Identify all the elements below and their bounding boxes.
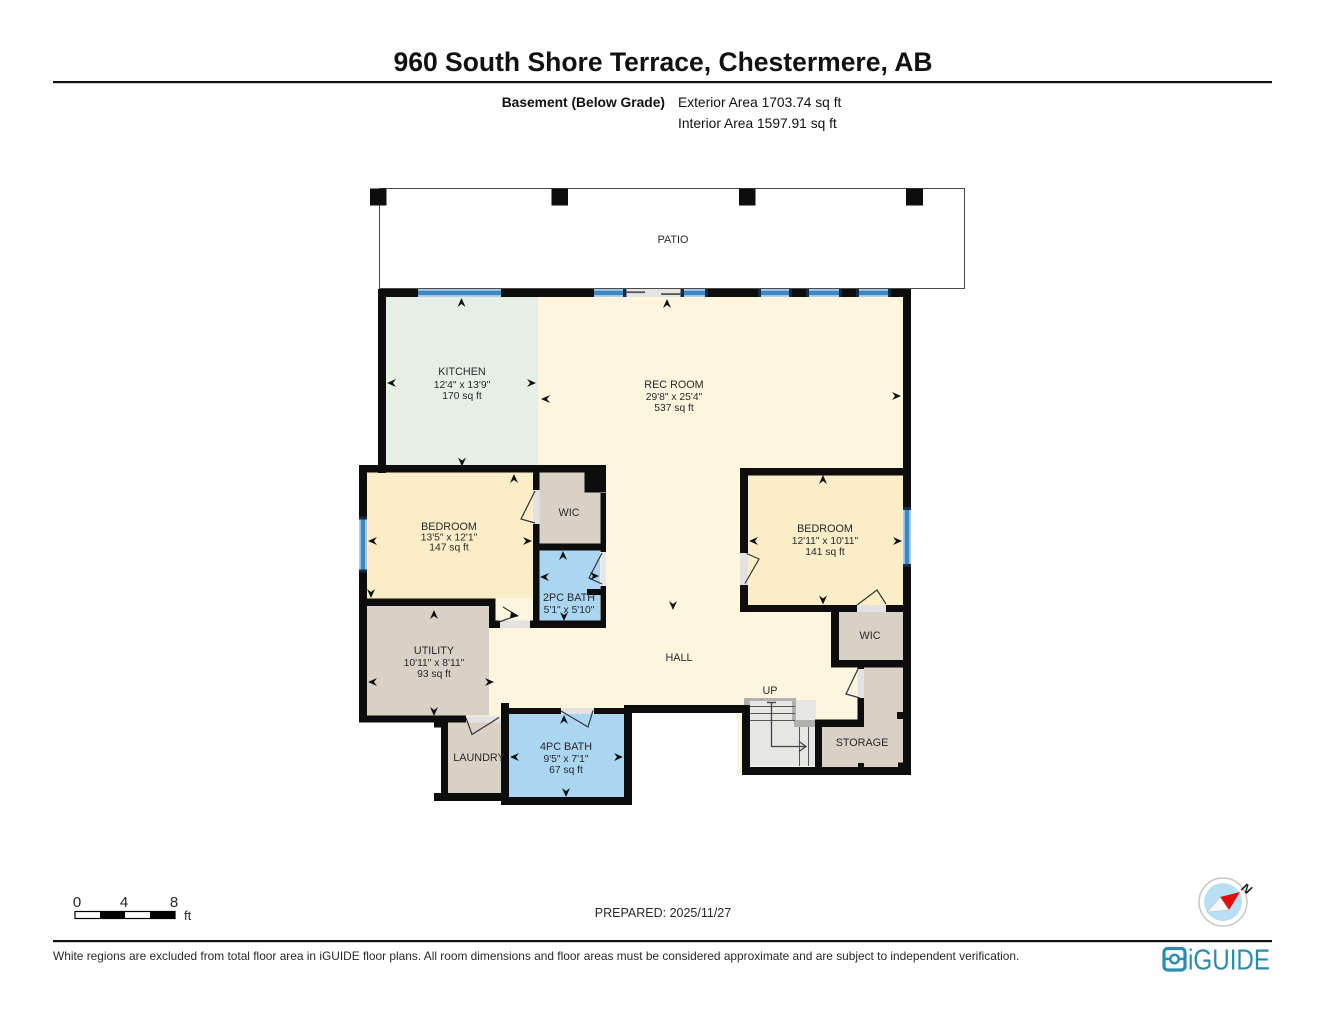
svg-text:Basement (Below Grade): Basement (Below Grade) — [502, 95, 665, 110]
svg-text:4: 4 — [120, 894, 128, 911]
svg-text:8: 8 — [170, 894, 178, 911]
svg-text:141 sq ft: 141 sq ft — [805, 547, 845, 558]
svg-text:BEDROOM: BEDROOM — [421, 521, 477, 533]
svg-text:Interior Area 1597.91 sq ft: Interior Area 1597.91 sq ft — [678, 116, 837, 131]
svg-text:4PC BATH: 4PC BATH — [540, 741, 592, 753]
svg-text:HALL: HALL — [665, 652, 692, 664]
svg-text:147 sq ft: 147 sq ft — [429, 543, 469, 554]
svg-text:170 sq ft: 170 sq ft — [442, 391, 482, 402]
svg-text:2PC BATH: 2PC BATH — [543, 592, 595, 604]
svg-text:LAUNDRY: LAUNDRY — [453, 752, 504, 764]
svg-text:White regions are excluded fro: White regions are excluded from total fl… — [53, 949, 1019, 963]
svg-text:12'11" x 10'11": 12'11" x 10'11" — [792, 536, 859, 547]
svg-text:PREPARED: 2025/11/27: PREPARED: 2025/11/27 — [595, 906, 731, 920]
svg-text:9'5" x 7'1": 9'5" x 7'1" — [543, 754, 588, 765]
svg-text:KITCHEN: KITCHEN — [438, 366, 485, 378]
svg-text:5'1" x 5'10": 5'1" x 5'10" — [544, 605, 595, 616]
svg-text:UTILITY: UTILITY — [414, 645, 454, 657]
svg-text:960 South Shore Terrace, Chest: 960 South Shore Terrace, Chestermere, AB — [393, 47, 932, 77]
svg-text:iGUIDE: iGUIDE — [1188, 944, 1270, 976]
svg-text:STORAGE: STORAGE — [836, 737, 889, 749]
svg-text:537 sq ft: 537 sq ft — [654, 403, 694, 414]
svg-text:ft: ft — [184, 908, 192, 923]
svg-text:REC ROOM: REC ROOM — [644, 379, 703, 391]
svg-text:29'8" x 25'4": 29'8" x 25'4" — [646, 392, 703, 403]
svg-text:12'4" x 13'9": 12'4" x 13'9" — [434, 380, 491, 391]
svg-text:0: 0 — [73, 894, 81, 911]
svg-text:BEDROOM: BEDROOM — [797, 523, 853, 535]
svg-text:WIC: WIC — [559, 507, 580, 519]
svg-text:10'11" x 8'11": 10'11" x 8'11" — [404, 658, 465, 669]
svg-text:Exterior Area 1703.74 sq ft: Exterior Area 1703.74 sq ft — [678, 95, 842, 110]
svg-text:WIC: WIC — [860, 630, 881, 642]
svg-text:PATIO: PATIO — [658, 234, 689, 246]
svg-text:67 sq ft: 67 sq ft — [549, 765, 583, 776]
svg-text:93 sq ft: 93 sq ft — [417, 669, 451, 680]
svg-text:UP: UP — [763, 685, 778, 697]
